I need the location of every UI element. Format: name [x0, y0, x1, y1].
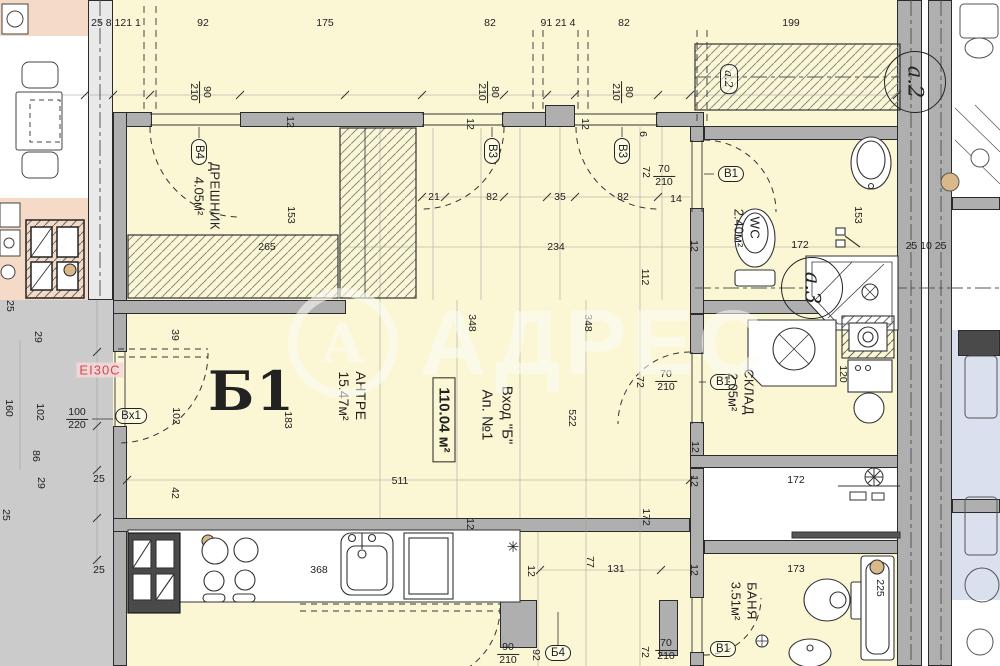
- dimension-label: 348: [582, 314, 594, 332]
- dimension-label: 39: [169, 329, 181, 341]
- wall-segment: [928, 0, 952, 666]
- dimension-label: 92: [530, 649, 542, 661]
- wall-segment: [113, 112, 127, 352]
- door-tag: В1: [710, 374, 736, 390]
- plan-underlay: [0, 0, 1000, 666]
- room-label: БАНЯ3.51м²: [728, 582, 759, 621]
- door-tag: Б4: [545, 645, 571, 661]
- dimension-label: 77: [584, 556, 596, 568]
- dimension-label: 42: [169, 487, 181, 499]
- dimension-label: 153: [852, 206, 864, 224]
- door-size-label: 70210: [653, 164, 675, 188]
- total-area-box: 110.04 м²: [433, 377, 456, 462]
- dimension-label: 82: [484, 17, 496, 29]
- dimension-label: 120: [837, 365, 849, 383]
- wall-segment: [240, 112, 424, 127]
- dimension-label: 172: [791, 239, 809, 251]
- room-label: СКЛАД2.05м²: [725, 369, 756, 415]
- dimension-label: 348: [466, 314, 478, 332]
- dimension-label: 72: [634, 376, 646, 388]
- dimension-label: 199: [782, 17, 800, 29]
- wall-segment: [690, 208, 704, 314]
- fixed-labels: Б1 110.04 м² Вход "Б" Ап. №1 EI30C: [0, 0, 1000, 666]
- wall-segment: [690, 652, 704, 666]
- dimension-label: 183: [282, 411, 294, 429]
- dimension-label: 112: [639, 269, 651, 286]
- dimension-label: 102: [170, 407, 182, 425]
- neighbor-right-blue-room: [952, 330, 1000, 600]
- dimension-label: 153: [285, 206, 297, 224]
- door-tag: В4: [191, 139, 207, 165]
- wall-segment: [690, 314, 704, 354]
- svg-text:✳: ✳: [507, 539, 520, 556]
- door-tag: В3: [484, 138, 500, 164]
- door-tag: а.2: [720, 64, 738, 94]
- dimension-label: 6: [637, 131, 649, 137]
- apartment-label: Б1: [208, 359, 296, 423]
- dimension-label: 225: [874, 579, 886, 597]
- installation-block: [958, 330, 1000, 356]
- wall-segment: [545, 105, 575, 127]
- wall-segment: [502, 112, 547, 127]
- wall-segment: [690, 455, 905, 468]
- door-tag: В3: [614, 138, 630, 164]
- door-tag: В1: [710, 641, 736, 657]
- dimension-label: 91 21 4: [540, 17, 575, 29]
- wall-segment: [88, 0, 113, 300]
- dimension-label: 12: [525, 565, 537, 577]
- entrance-line2: Ап. №1: [478, 386, 498, 445]
- room-label: WC2.40м²: [731, 209, 762, 248]
- wall-segment: [952, 499, 1000, 513]
- wall-segment: [704, 126, 905, 140]
- wall-segment: [500, 600, 537, 648]
- entrance-label: Вход "Б" Ап. №1: [478, 386, 517, 445]
- entrance-line1: Вход "Б": [497, 386, 517, 445]
- dimension-label: 12: [579, 118, 591, 130]
- wall-segment: [952, 197, 1000, 210]
- labels-layer: 25 8 121 1921758291 21 48219921823582234…: [0, 0, 1000, 666]
- dimension-label: 234: [547, 241, 565, 253]
- door-tag: В1: [718, 166, 744, 182]
- wall-segment: [690, 300, 905, 314]
- dimension-label: 511: [392, 475, 409, 487]
- dimension-label: 35: [554, 191, 566, 203]
- room-label: ДРЕШНИК4.05м²: [191, 162, 222, 230]
- room-label: АНТРЕ15.47м²: [335, 371, 369, 420]
- wall-segment: [690, 468, 704, 598]
- door-size-label: 80210: [476, 81, 500, 103]
- dimension-label: 92: [197, 17, 209, 29]
- door-size-label: 80210: [610, 81, 634, 103]
- floor-plan: ✳: [0, 0, 1000, 666]
- dimension-label: 82: [617, 191, 629, 203]
- dimension-label: 368: [310, 564, 328, 576]
- door-tag: Вх1: [115, 408, 147, 424]
- dimension-label: 173: [787, 563, 805, 575]
- wall-segment: [113, 426, 127, 666]
- dimension-label: 12: [464, 118, 476, 130]
- wall-segment: [113, 518, 690, 532]
- neighbor-room-pink-bottom: [0, 198, 88, 300]
- wall-segment: [704, 540, 905, 554]
- dimension-label: 82: [618, 17, 630, 29]
- door-size-label: 70210: [655, 369, 677, 393]
- common-corridor: [0, 300, 113, 666]
- dimension-label: 131: [607, 563, 625, 575]
- wall-segment: [659, 600, 678, 656]
- dimension-label: 14: [670, 193, 682, 205]
- wall-segment: [897, 0, 922, 666]
- neighbor-room-white: [0, 36, 88, 198]
- wall-segment: [656, 112, 704, 127]
- wall-segment: [113, 300, 346, 314]
- dimension-label: 265: [258, 241, 276, 253]
- dimension-label: 82: [486, 191, 498, 203]
- watermark-logo-letter: А: [321, 311, 365, 375]
- dimension-label: 175: [316, 17, 334, 29]
- dimension-label: 21: [428, 191, 440, 203]
- wall-segment: [690, 126, 704, 142]
- service-strip: [704, 468, 905, 540]
- dimension-label: 72: [639, 646, 651, 658]
- door-size-label: 90210: [188, 81, 212, 103]
- dimension-label: 522: [566, 409, 578, 427]
- neighbor-room-pink-top: [0, 0, 88, 36]
- plan-fixtures: ✳: [0, 0, 1000, 666]
- dimension-label: 72: [640, 166, 652, 178]
